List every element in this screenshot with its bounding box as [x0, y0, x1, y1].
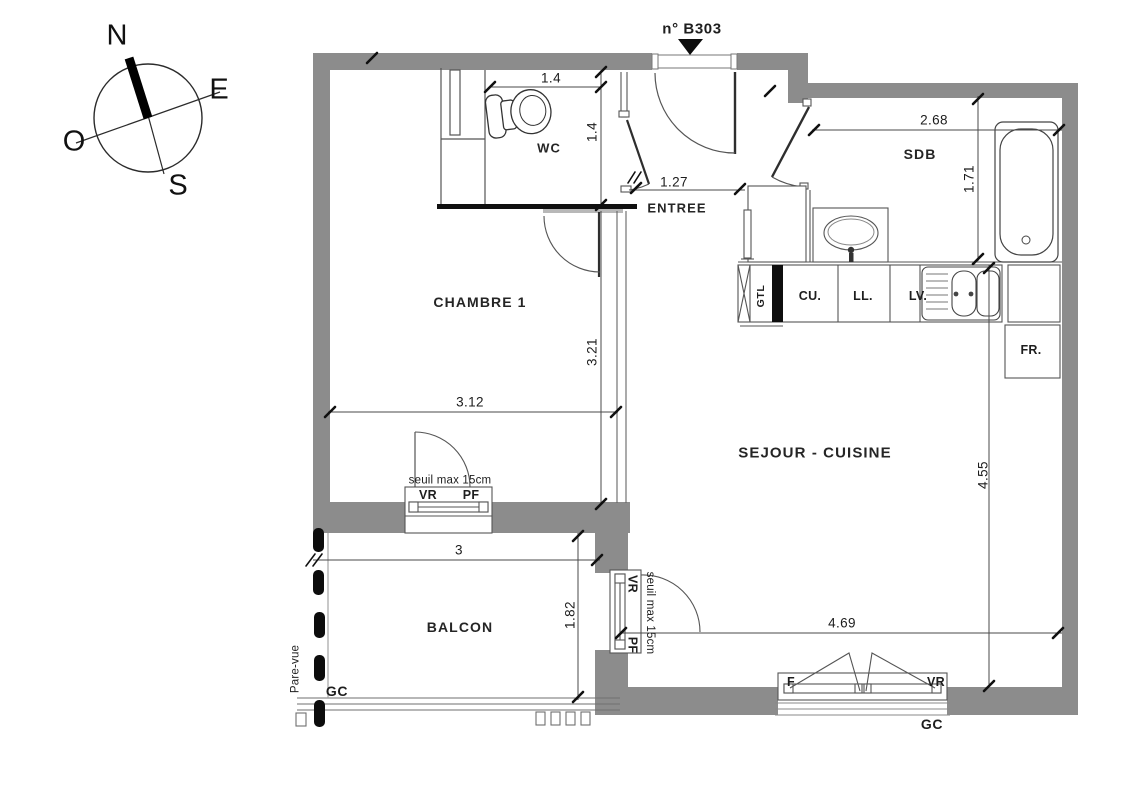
floor-plan-linework: [0, 0, 1144, 800]
toilet: [485, 87, 554, 138]
kitchen-cu-label: CU.: [799, 290, 821, 303]
dim-entree-width: 1.27: [660, 175, 688, 189]
dim-balcon-depth: 1.82: [563, 601, 577, 629]
wc-walls: [441, 68, 485, 206]
room-label-wc: WC: [537, 142, 561, 155]
sejour-south-window-f-label: F: [787, 676, 795, 689]
room-label-sejour: SEJOUR - CUISINE: [738, 446, 891, 461]
dim-sejour-width: 4.69: [828, 616, 856, 630]
compass-north-label: N: [107, 22, 128, 51]
room-label-chambre: CHAMBRE 1: [433, 295, 526, 309]
kitchen-counter: [738, 265, 1060, 378]
room-label-balcon: BALCON: [427, 620, 493, 634]
unit-label: n° B303: [662, 22, 721, 37]
kitchen-lv-label: LV.: [909, 290, 927, 303]
entree-south-wall: [437, 204, 637, 213]
entree-closet: [741, 186, 806, 262]
sejour-west-window-pf-label: PF: [626, 637, 639, 654]
kitchen-gtl-label: GTL: [756, 285, 767, 308]
sejour-south-window-gc-label: GC: [921, 717, 943, 731]
entrance-marker-triangle: [678, 39, 703, 55]
kitchen-ll-label: LL.: [853, 290, 873, 303]
dim-wc-depth: 1.4: [585, 122, 599, 142]
room-label-sdb: SDB: [904, 147, 937, 161]
chambre-door: [544, 212, 600, 277]
dim-sdb-width: 2.68: [920, 113, 948, 127]
sejour-west-window-vr-label: VR: [626, 575, 639, 593]
chambre-window-vr-label: VR: [419, 489, 437, 502]
sdb-door: [772, 99, 811, 189]
dimension-lines: [313, 70, 1062, 700]
exterior-walls: [313, 53, 1078, 715]
compass-east-label: E: [209, 76, 228, 105]
dim-sdb-depth: 1.71: [962, 165, 976, 193]
dim-balcon-width: 3: [455, 543, 463, 557]
room-label-entree: ENTREE: [647, 202, 706, 215]
pare-vue-label: Pare-vue: [290, 645, 302, 693]
compass-rose: [76, 58, 220, 174]
dim-chambre-depth: 3.21: [585, 338, 599, 366]
sejour-south-window: [775, 653, 950, 715]
sejour-west-window-sill-note: seuil max 15cm: [643, 572, 655, 655]
chambre-partition: [617, 211, 626, 503]
sdb-vanity-sink: [813, 208, 888, 262]
balcony-gc-label: GC: [326, 684, 348, 698]
dim-chambre-width: 3.12: [456, 395, 484, 409]
dim-wc-width: 1.4: [541, 71, 561, 85]
bathtub: [995, 122, 1058, 262]
sejour-south-window-vr-label: VR: [927, 676, 945, 689]
kitchen-sink: [922, 267, 1000, 320]
compass-south-label: S: [168, 172, 187, 201]
chambre-window-sill-note: seuil max 15cm: [409, 475, 492, 487]
dimension-ticks: [325, 53, 1064, 702]
floor-plan: N E O S n° B303 WC ENTREE CHAMBRE 1 SDB …: [0, 0, 1144, 800]
kitchen-fr-label: FR.: [1020, 344, 1041, 357]
compass-west-label: O: [63, 128, 86, 157]
chambre-window-pf-label: PF: [463, 489, 480, 502]
dim-sejour-depth: 4.55: [976, 461, 990, 489]
entrance-door: [652, 54, 737, 154]
